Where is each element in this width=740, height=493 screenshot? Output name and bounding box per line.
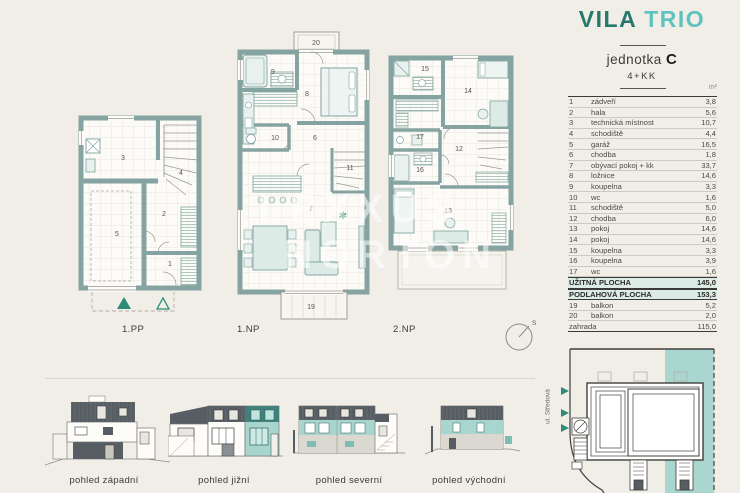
- room-number-cell: 8: [569, 171, 591, 180]
- floor-plan-1np: ✱ 9 8 10 6 11 7 19 20: [237, 30, 370, 322]
- room-area-cell: 5,0: [705, 203, 716, 212]
- room-number: 13: [444, 208, 452, 215]
- room-label-cell: zádveří: [591, 97, 705, 106]
- room-number: 12: [455, 146, 463, 153]
- room-number: 19: [307, 304, 315, 311]
- side-utilities: [572, 418, 589, 469]
- entrance-marker-icon: [561, 424, 569, 432]
- entrance-marker-icon: [561, 387, 569, 395]
- table-row: 10 wc 1,6: [568, 192, 717, 203]
- room-label-cell: chodba: [591, 214, 705, 223]
- table-row: 13 pokoj 14,6: [568, 224, 717, 235]
- room-number: 15: [421, 66, 429, 73]
- table-row: 2 hala 5,6: [568, 108, 717, 119]
- room-number-cell: 9: [569, 182, 591, 191]
- table-row: 6 chodba 1,8: [568, 150, 717, 161]
- elevation-label-north: pohled severní: [289, 475, 409, 486]
- table-row: 3 technická místnost 10,7: [568, 118, 717, 129]
- room-label-cell: wc: [591, 193, 705, 202]
- unit-word: jednotka: [607, 52, 662, 67]
- table-row: 4 schodiště 4,4: [568, 129, 717, 140]
- room-label-cell: schodiště: [591, 203, 705, 212]
- table-row: 19 balkon 5,2: [568, 300, 717, 311]
- room-number-cell: 3: [569, 118, 591, 127]
- brand-word-1: VILA: [579, 6, 637, 32]
- room-label-cell: chodba: [591, 150, 705, 159]
- dining-table-icon: [244, 226, 296, 270]
- room-label-cell: garáž: [591, 140, 701, 149]
- unit-title: jednotka C: [558, 51, 726, 68]
- room-area-cell: 1,8: [705, 150, 716, 159]
- room-area-cell: 4,4: [705, 129, 716, 138]
- room-area-cell: 1,6: [705, 267, 716, 276]
- room-number: 6: [313, 135, 317, 142]
- garage-door: [88, 284, 136, 292]
- room-label-cell: ložnice: [591, 171, 701, 180]
- room-number: 10: [271, 135, 279, 142]
- floor-plan-1pp: 3 4 2 5 1: [78, 115, 202, 315]
- table-row: 14 pokoj 14,6: [568, 235, 717, 246]
- room-number-cell: 16: [569, 256, 591, 265]
- room-number-cell: 5: [569, 140, 591, 149]
- room-label-cell: koupelna: [591, 246, 705, 255]
- table-row: 8 ložnice 14,6: [568, 171, 717, 182]
- elevation-east: [425, 394, 520, 466]
- toilet-icon: [246, 128, 256, 144]
- room-number: 2: [162, 211, 166, 218]
- elevation-label-east: pohled východní: [409, 475, 529, 486]
- entrance-marker-outline-icon: [157, 298, 169, 309]
- room-area-cell: 14,6: [701, 224, 716, 233]
- room-number-cell: 4: [569, 129, 591, 138]
- bed-icon: [321, 68, 357, 116]
- wardrobe-icon: [396, 113, 408, 127]
- table-row: UŽITNÁ PLOCHA 145,0: [568, 277, 717, 289]
- room-area-cell: 5,6: [705, 108, 716, 117]
- room-number-cell: 20: [569, 311, 591, 320]
- room-number-cell: 13: [569, 224, 591, 233]
- room-area-cell: 1,6: [705, 193, 716, 202]
- table-row: 11 schodiště 5,0: [568, 203, 717, 214]
- room-label-cell: PODLAHOVÁ PLOCHA: [569, 290, 697, 299]
- room-area-cell: 3,3: [705, 246, 716, 255]
- room-number-cell: 19: [569, 301, 591, 310]
- building-footprint: [587, 383, 703, 460]
- roof-terrace: [398, 251, 506, 289]
- room-area-cell: 145,0: [697, 278, 716, 287]
- table-row: 1 zádveří 3,8: [568, 97, 717, 108]
- elevation-south: [168, 392, 283, 470]
- room-label-cell: pokoj: [591, 224, 701, 233]
- room-number-cell: 12: [569, 214, 591, 223]
- header-divider-top: [620, 45, 666, 46]
- room-number: 9: [271, 69, 275, 76]
- closet-icon: [181, 207, 197, 247]
- room-label-cell: obývací pokoj + kk: [591, 161, 701, 170]
- compass-icon: S: [498, 314, 542, 358]
- table-row: 7 obývací pokoj + kk 33,7: [568, 161, 717, 172]
- table-row: PODLAHOVÁ PLOCHA 153,3: [568, 289, 717, 301]
- floor-label-1np: 1.NP: [237, 324, 260, 335]
- shower-icon: [394, 61, 409, 76]
- room-area-cell: 16,5: [701, 140, 716, 149]
- elevation-north: [293, 390, 405, 468]
- tv-sideboard-icon: [359, 226, 364, 268]
- room-area-cell: 10,7: [701, 118, 716, 127]
- area-table-rows: 1 zádveří 3,8 2 hala 5,6 3 technická mís…: [568, 97, 717, 332]
- room-area-cell: 115,0: [698, 322, 716, 331]
- room-number: 7: [309, 206, 313, 213]
- room-label-cell: wc: [591, 267, 705, 276]
- floor-plan-2np: 15 14 17 12 16 13: [388, 55, 514, 293]
- table-row: 16 koupelna 3,9: [568, 256, 717, 267]
- north-label: S: [532, 320, 537, 327]
- room-area-cell: 2,0: [705, 311, 716, 320]
- kitchen-cabinets-icon: [253, 92, 297, 106]
- room-area-cell: 3,9: [705, 256, 716, 265]
- room-number: 1: [168, 261, 172, 268]
- unit-letter: C: [666, 51, 677, 68]
- room-label-cell: pokoj: [591, 235, 701, 244]
- floor-label-2np: 2.NP: [393, 324, 416, 335]
- room-area-cell: 6,0: [705, 214, 716, 223]
- room-area-cell: 14,6: [701, 171, 716, 180]
- room-label-cell: balkon: [591, 311, 705, 320]
- entrance-marker-filled-icon: [117, 297, 131, 309]
- room-number: 11: [346, 165, 353, 172]
- street-label: ul. Středová: [545, 382, 552, 432]
- room-number: 16: [416, 167, 424, 174]
- room-number-cell: 17: [569, 267, 591, 276]
- room-label-cell: schodiště: [591, 129, 705, 138]
- room-area-cell: 3,3: [705, 182, 716, 191]
- closet-icon: [181, 258, 197, 285]
- wardrobe-icon: [396, 100, 438, 111]
- room-area-cell: 5,2: [705, 301, 716, 310]
- room-label-cell: koupelna: [591, 182, 705, 191]
- elevation-label-south: pohled jižní: [164, 475, 284, 486]
- brand-title: VILA TRIO: [558, 6, 726, 33]
- site-plan: [558, 342, 740, 493]
- washer-icon: [86, 139, 100, 153]
- bed-icon: [394, 189, 414, 233]
- table-row: 12 chodba 6,0: [568, 214, 717, 225]
- sink-icon: [86, 159, 95, 172]
- floor-label-1pp: 1.PP: [122, 324, 144, 335]
- room-number-cell: 1: [569, 97, 591, 106]
- room-number: 14: [464, 88, 472, 95]
- disposition: 4+KK: [558, 71, 726, 82]
- coffee-table-icon: [321, 222, 336, 246]
- table-row: 9 koupelna 3,3: [568, 182, 717, 193]
- room-label-cell: koupelna: [591, 256, 705, 265]
- room-number: 5: [115, 231, 119, 238]
- room-number: 20: [312, 40, 320, 47]
- elevation-west: [45, 392, 170, 477]
- room-label-cell: balkon: [591, 301, 705, 310]
- room-number: 4: [179, 170, 183, 177]
- room-number-cell: 15: [569, 246, 591, 255]
- wardrobe-icon: [492, 213, 506, 243]
- entrance-stairs: [630, 460, 693, 490]
- elevation-label-west: pohled západní: [44, 475, 164, 486]
- room-label-cell: UŽITNÁ PLOCHA: [569, 278, 697, 287]
- table-row: 20 balkon 2,0: [568, 311, 717, 322]
- room-area-cell: 153,3: [697, 290, 716, 299]
- entrance-marker-icon: [561, 409, 569, 417]
- room-area-cell: 14,6: [701, 235, 716, 244]
- room-number: 17: [416, 134, 424, 141]
- room-number: 8: [305, 91, 309, 98]
- bed-icon: [478, 61, 508, 78]
- area-unit-header: m²: [640, 84, 717, 91]
- room-number-cell: 6: [569, 150, 591, 159]
- table-row: 17 wc 1,6: [568, 267, 717, 278]
- washbasin-icon: [413, 77, 433, 90]
- asterisk-marker-icon: ✱: [339, 211, 347, 222]
- room-number-cell: 10: [569, 193, 591, 202]
- room-number: 3: [121, 155, 125, 162]
- shelving-icon: [476, 172, 508, 182]
- table-row: 15 koupelna 3,3: [568, 245, 717, 256]
- room-number-cell: 11: [569, 203, 591, 212]
- table-row: zahrada 115,0: [568, 321, 717, 332]
- section-divider: [45, 378, 535, 379]
- room-label-cell: zahrada: [569, 322, 698, 331]
- room-number-cell: 2: [569, 108, 591, 117]
- room-label-cell: technická místnost: [591, 118, 701, 127]
- room-area-cell: 33,7: [701, 161, 716, 170]
- area-table: 1 zádveří 3,8 2 hala 5,6 3 technická mís…: [568, 96, 717, 332]
- brand-word-2: TRIO: [644, 6, 705, 32]
- room-area-cell: 3,8: [705, 97, 716, 106]
- room-label-cell: hala: [591, 108, 705, 117]
- room-number-cell: 7: [569, 161, 591, 170]
- bathtub-icon: [243, 55, 267, 87]
- room-number-cell: 14: [569, 235, 591, 244]
- table-row: 5 garáž 16,5: [568, 139, 717, 150]
